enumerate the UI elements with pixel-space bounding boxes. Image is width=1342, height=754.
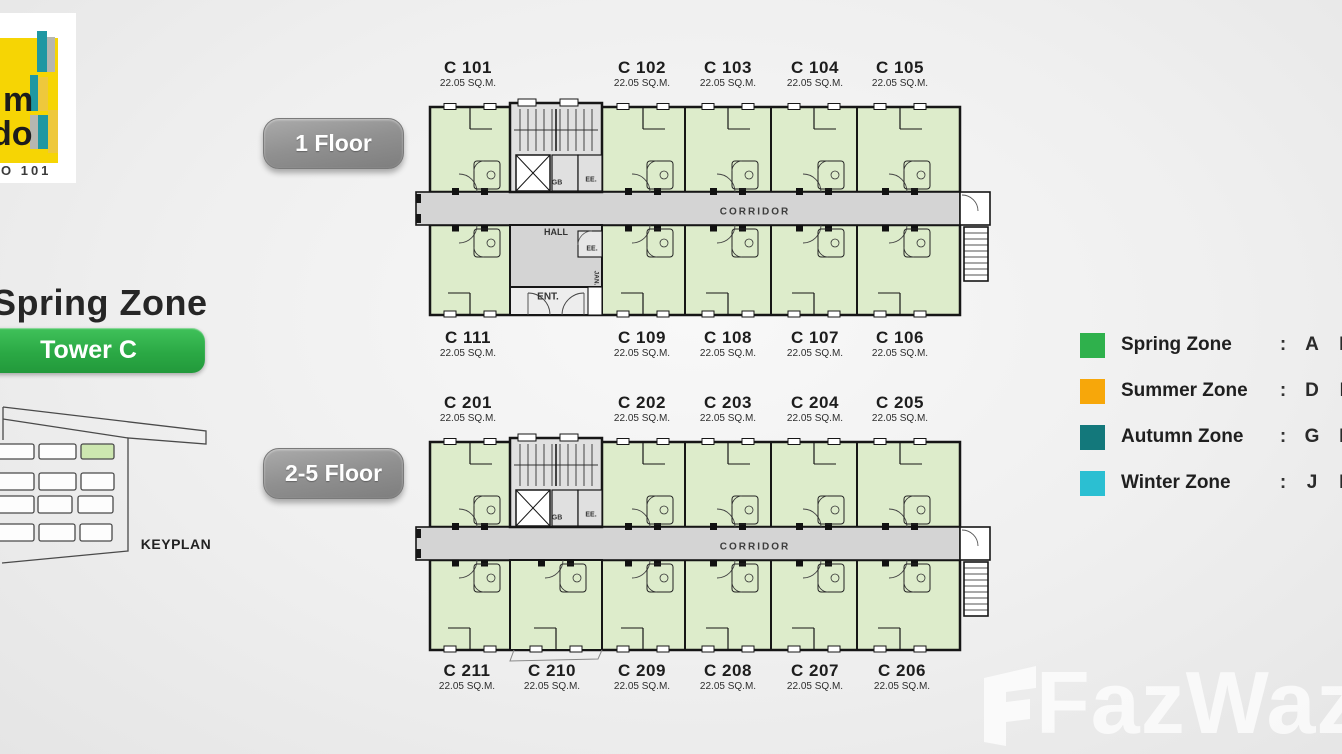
legend-row-spring: Spring Zone : A B [1080,322,1342,368]
logo-letter-fragment: do [0,117,33,151]
floor-plan-1-drawing [414,95,1014,330]
unit-label: C 10822.05 SQ.M. [700,329,756,360]
unit-label: C 20722.05 SQ.M. [787,662,843,693]
floor2-button[interactable]: 2-5 Floor [263,448,404,499]
unit-label: C 20522.05 SQ.M. [872,394,928,425]
room-label-jan: JAN. [593,271,600,286]
room-label-hall: HALL [544,227,568,237]
unit-label: C 20922.05 SQ.M. [614,662,670,693]
unit-label: C 20422.05 SQ.M. [787,394,843,425]
floor-plan-2-drawing [414,430,1014,665]
room-label-ee: EE. [585,177,596,184]
winter-zone-swatch [1080,471,1105,496]
watermark-logo-icon [980,664,1040,748]
zone-title: Spring Zone [0,282,208,324]
logo-yellow-bar [48,110,58,153]
unit-label: C 10722.05 SQ.M. [787,329,843,360]
unit-label: C 20222.05 SQ.M. [614,394,670,425]
room-label-gb: GB [552,180,563,187]
floor1-button[interactable]: 1 Floor [263,118,404,169]
legend-row-winter: Winter Zone : J K [1080,460,1342,506]
legend-row-summer: Summer Zone : D E [1080,368,1342,414]
logo-letter-fragment: m [3,85,33,115]
floorplan-page: m do O 101 Spring Zone Tower C KEYPLAN 1… [0,0,1342,754]
tower-c-button[interactable]: Tower C [0,328,205,373]
unit-label: C 10122.05 SQ.M. [440,59,496,90]
room-label-entrance: ENT. [537,292,559,303]
unit-label: C 20822.05 SQ.M. [700,662,756,693]
room-label-gb: GB [552,515,563,522]
unit-label: C 10222.05 SQ.M. [614,59,670,90]
unit-label: C 10322.05 SQ.M. [700,59,756,90]
logo-yellow-bar [38,77,48,111]
room-label-ee: EE. [585,512,596,519]
logo-teal-bar [38,115,48,149]
logo-gray-bar [47,37,55,72]
autumn-zone-swatch [1080,425,1105,450]
unit-label: C 10422.05 SQ.M. [787,59,843,90]
keyplan-highlighted-building [81,444,114,459]
zone-legend: Spring Zone : A B Summer Zone : D E Autu… [1080,322,1342,506]
room-label-ee: EE. [586,246,597,253]
unit-label: C 20322.05 SQ.M. [700,394,756,425]
legend-row-autumn: Autumn Zone : G H [1080,414,1342,460]
watermark-text: FazWaz [1036,652,1342,754]
summer-zone-swatch [1080,379,1105,404]
developer-logo: m do O 101 [0,13,76,183]
unit-label: C 10622.05 SQ.M. [872,329,928,360]
keyplan-caption: KEYPLAN [141,536,211,552]
unit-label: C 21122.05 SQ.M. [439,662,495,693]
unit-label: C 20622.05 SQ.M. [874,662,930,693]
unit-label: C 10922.05 SQ.M. [614,329,670,360]
unit-label: C 11122.05 SQ.M. [440,329,496,360]
corridor-label: CORRIDOR [720,542,790,553]
unit-label: C 21022.05 SQ.M. [524,662,580,693]
unit-label: C 10522.05 SQ.M. [872,59,928,90]
unit-label: C 20122.05 SQ.M. [440,394,496,425]
logo-teal-bar [37,31,47,72]
logo-caption: O 101 [1,163,51,178]
corridor-label: CORRIDOR [720,207,790,218]
spring-zone-swatch [1080,333,1105,358]
